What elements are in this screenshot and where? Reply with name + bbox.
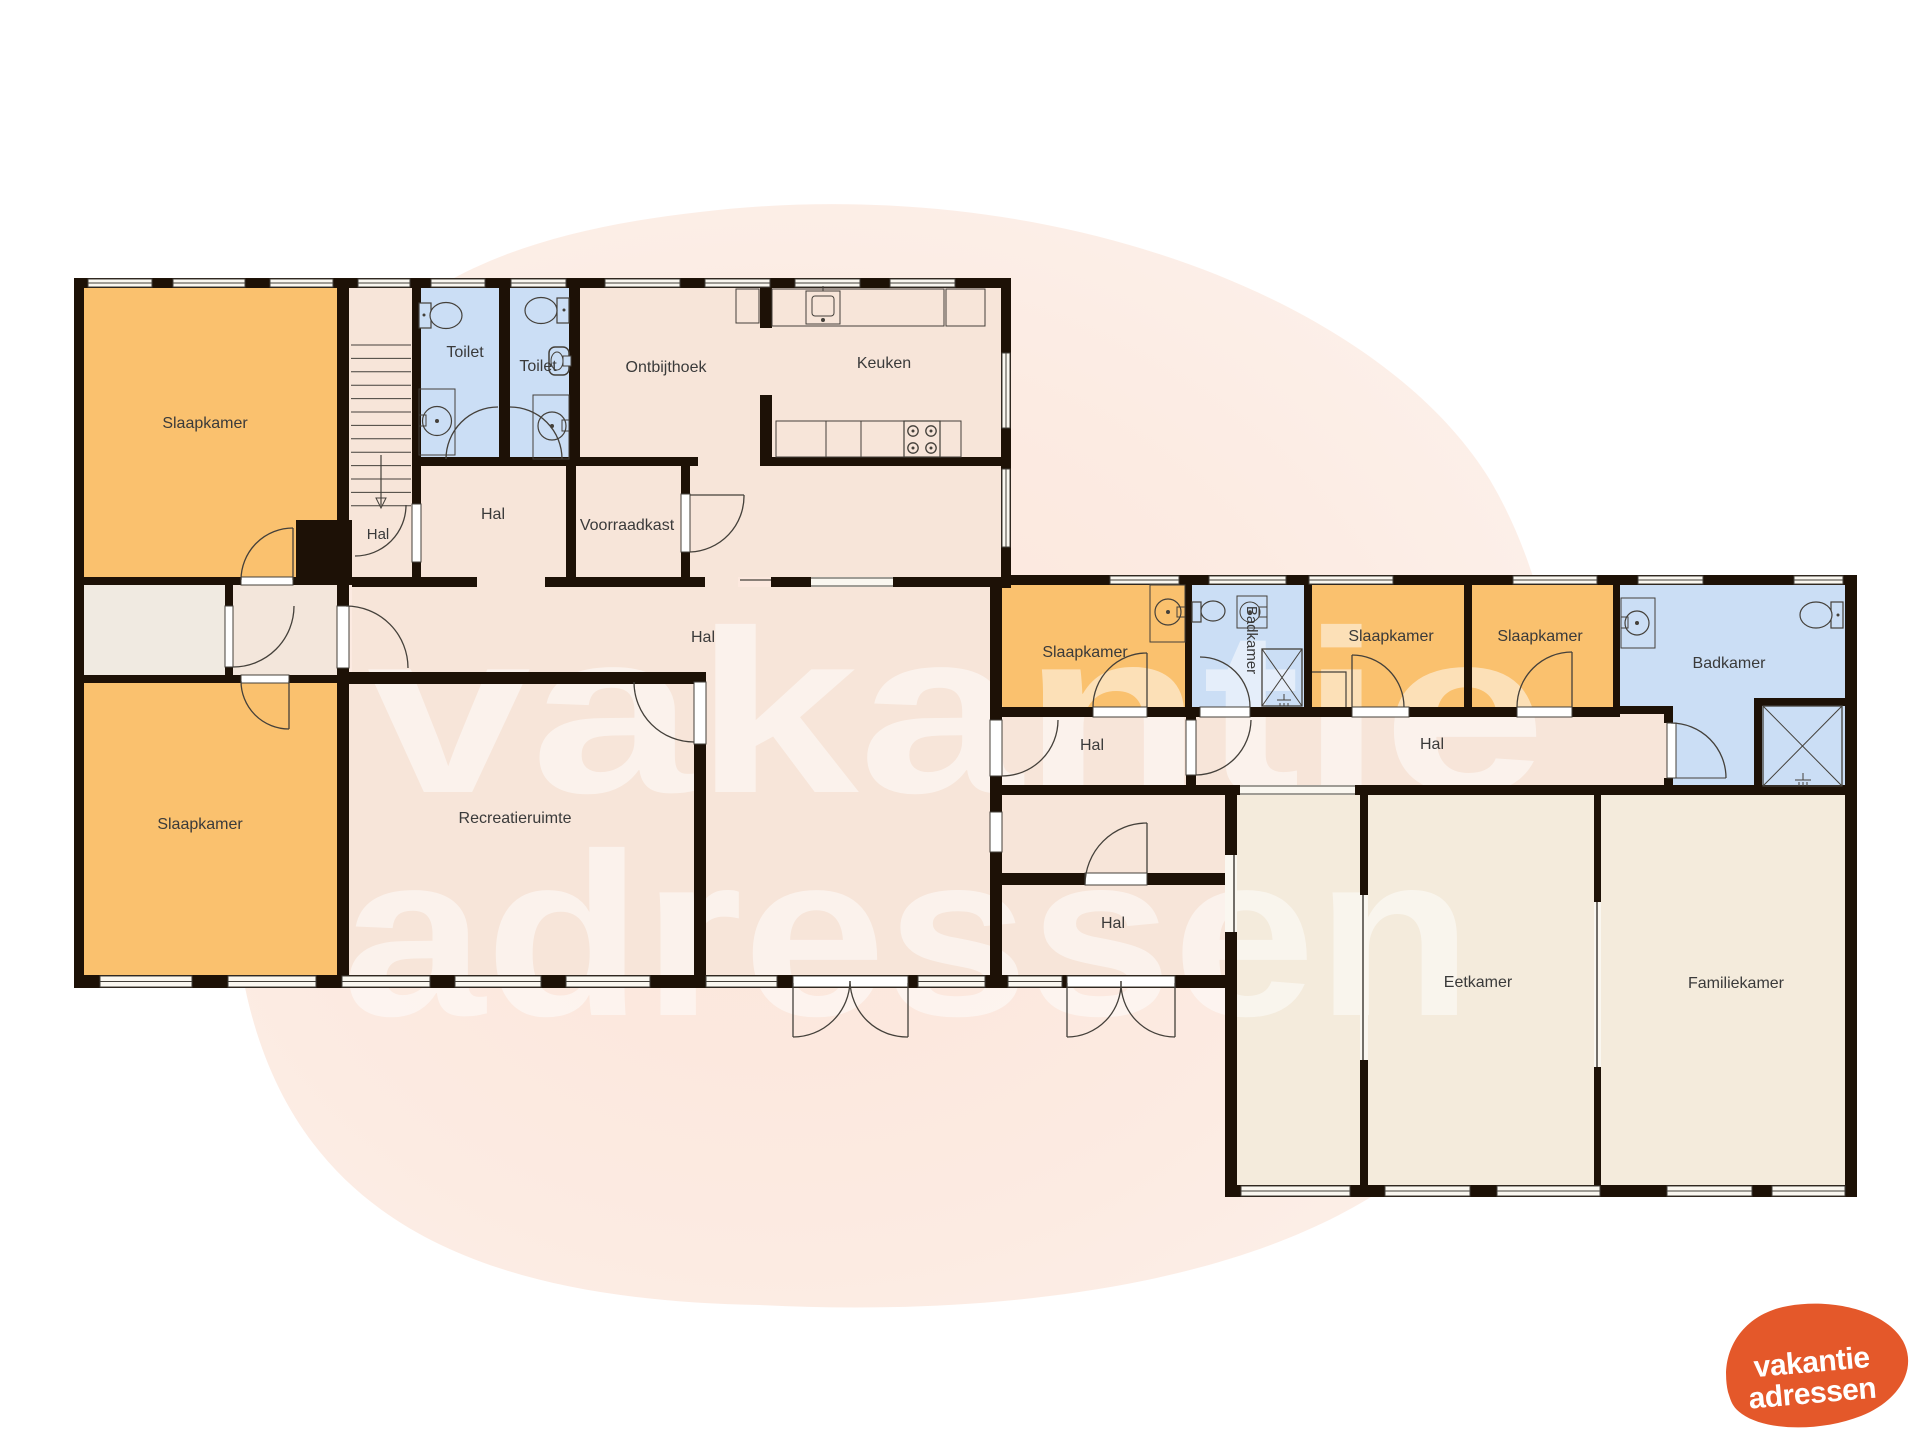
svg-text:Recreatieruimte: Recreatieruimte bbox=[459, 810, 572, 827]
svg-text:Hal: Hal bbox=[367, 526, 390, 543]
svg-text:Slaapkamer: Slaapkamer bbox=[1497, 628, 1583, 645]
svg-text:Slaapkamer: Slaapkamer bbox=[1042, 644, 1128, 661]
svg-text:Hal: Hal bbox=[481, 506, 505, 523]
svg-text:Voorraadkast: Voorraadkast bbox=[580, 517, 675, 534]
svg-text:Hal: Hal bbox=[691, 629, 715, 646]
svg-text:Ontbijthoek: Ontbijthoek bbox=[626, 359, 708, 376]
svg-text:Toilet: Toilet bbox=[446, 344, 484, 361]
svg-text:Slaapkamer: Slaapkamer bbox=[162, 415, 248, 432]
svg-text:Slaapkamer: Slaapkamer bbox=[1348, 628, 1434, 645]
svg-text:Keuken: Keuken bbox=[857, 355, 911, 372]
svg-text:Toilet: Toilet bbox=[519, 358, 557, 375]
svg-text:Badkamer: Badkamer bbox=[1243, 606, 1260, 674]
svg-text:Familiekamer: Familiekamer bbox=[1688, 975, 1785, 992]
svg-text:Slaapkamer: Slaapkamer bbox=[157, 816, 243, 833]
svg-text:Badkamer: Badkamer bbox=[1693, 655, 1767, 672]
svg-text:Hal: Hal bbox=[1420, 736, 1444, 753]
svg-text:Hal: Hal bbox=[1080, 737, 1104, 754]
svg-text:Hal: Hal bbox=[1101, 915, 1125, 932]
svg-text:Eetkamer: Eetkamer bbox=[1444, 974, 1513, 991]
